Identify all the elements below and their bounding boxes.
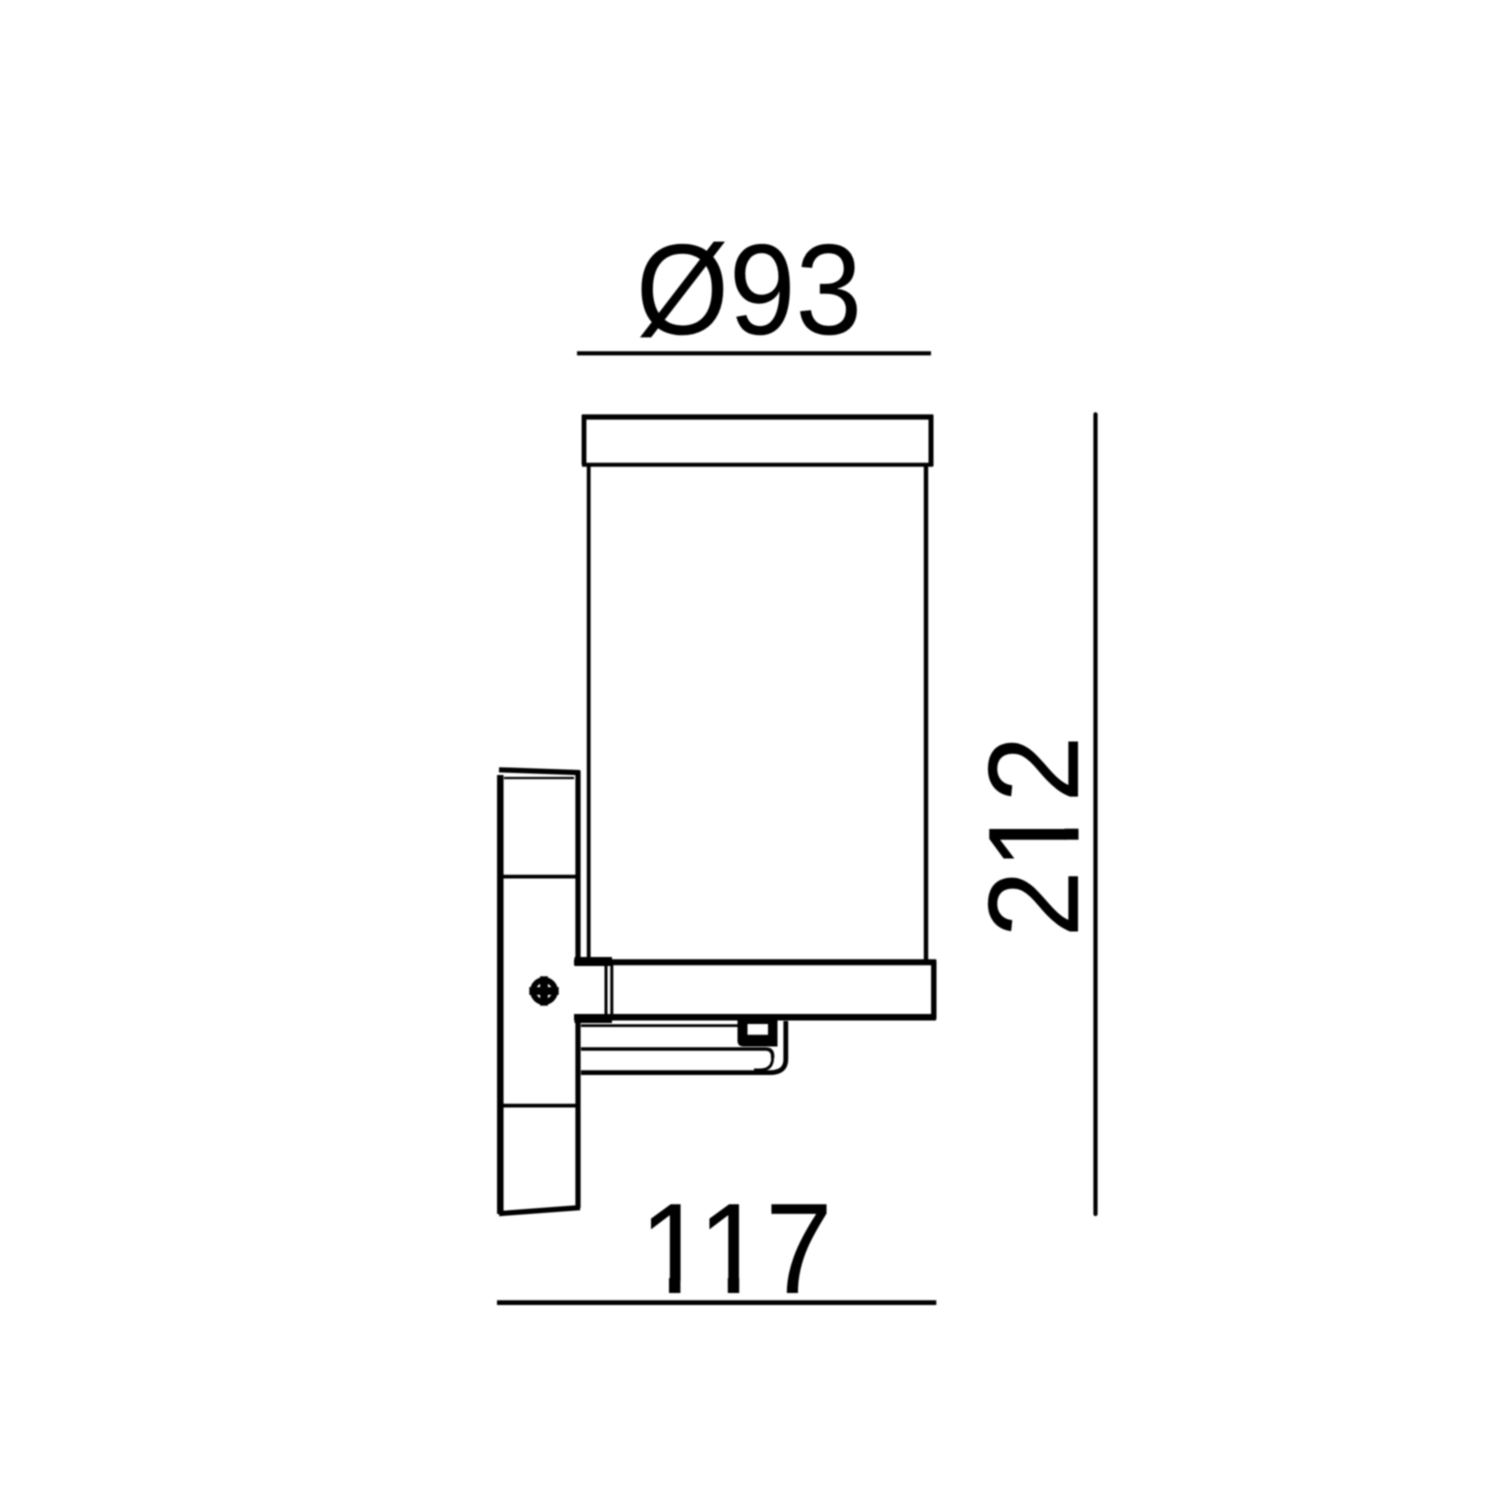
svg-text:212: 212: [962, 735, 1106, 937]
svg-text:117: 117: [639, 1177, 832, 1321]
svg-text:Ø93: Ø93: [636, 218, 862, 362]
